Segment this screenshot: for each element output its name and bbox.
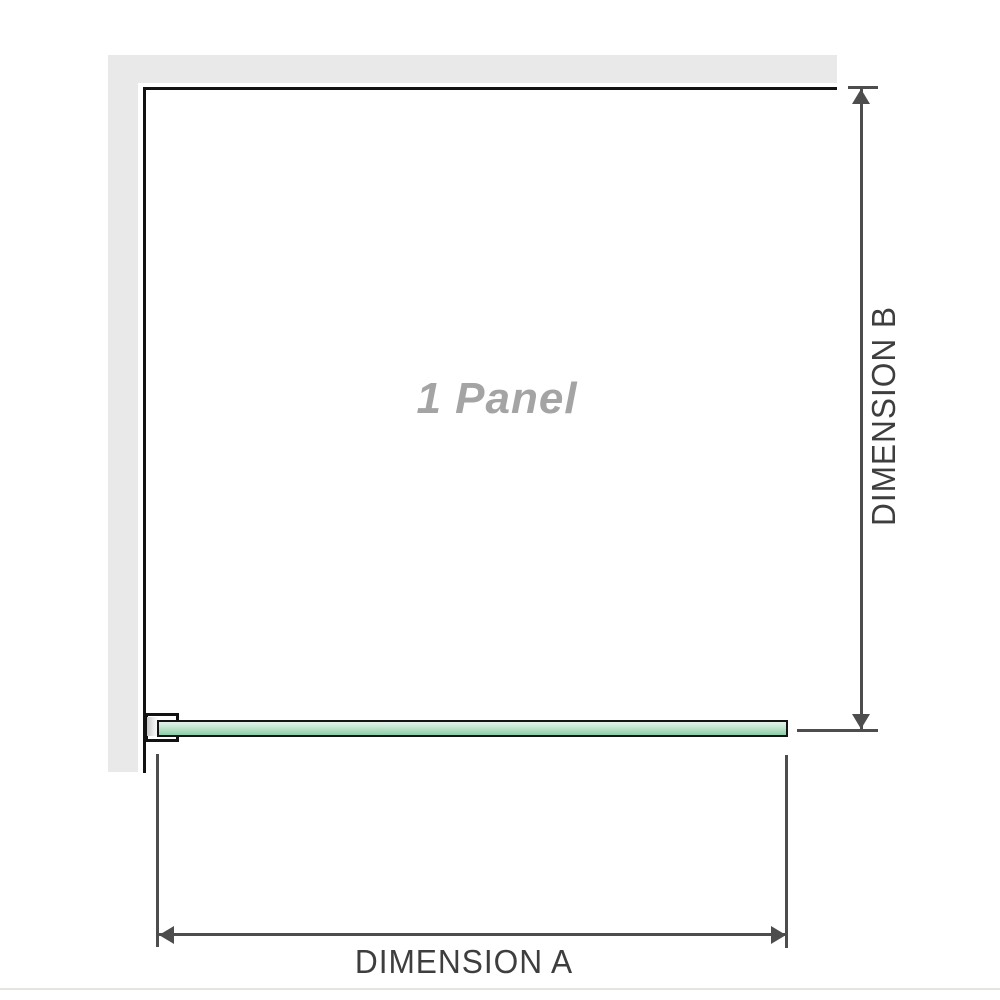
panel-top-edge-line bbox=[143, 87, 837, 90]
dimension-b-bottom-tick bbox=[797, 729, 878, 732]
dimension-a-line bbox=[159, 933, 786, 936]
glass-panel-bar bbox=[157, 720, 788, 737]
wall-top-bar bbox=[108, 55, 837, 83]
dimension-b-label: DIMENSION B bbox=[865, 306, 903, 526]
dimension-b-arrow-down-icon bbox=[852, 714, 870, 729]
dimension-a-extension-right bbox=[785, 755, 788, 948]
panel-left-edge-line bbox=[143, 87, 146, 773]
wall-left-bar bbox=[108, 55, 138, 772]
dimension-b-arrow-up-icon bbox=[852, 89, 870, 104]
dimension-b-line bbox=[860, 89, 863, 729]
panel-count-label: 1 Panel bbox=[416, 374, 577, 424]
dimension-a-extension-left bbox=[156, 754, 159, 947]
footer-divider bbox=[0, 988, 1000, 990]
panel-dimension-diagram: 1 Panel DIMENSION B DIMENSION A bbox=[0, 0, 1000, 1000]
dimension-a-arrow-left-icon bbox=[159, 926, 174, 944]
dimension-a-label: DIMENSION A bbox=[355, 943, 573, 981]
dimension-a-arrow-right-icon bbox=[771, 926, 786, 944]
